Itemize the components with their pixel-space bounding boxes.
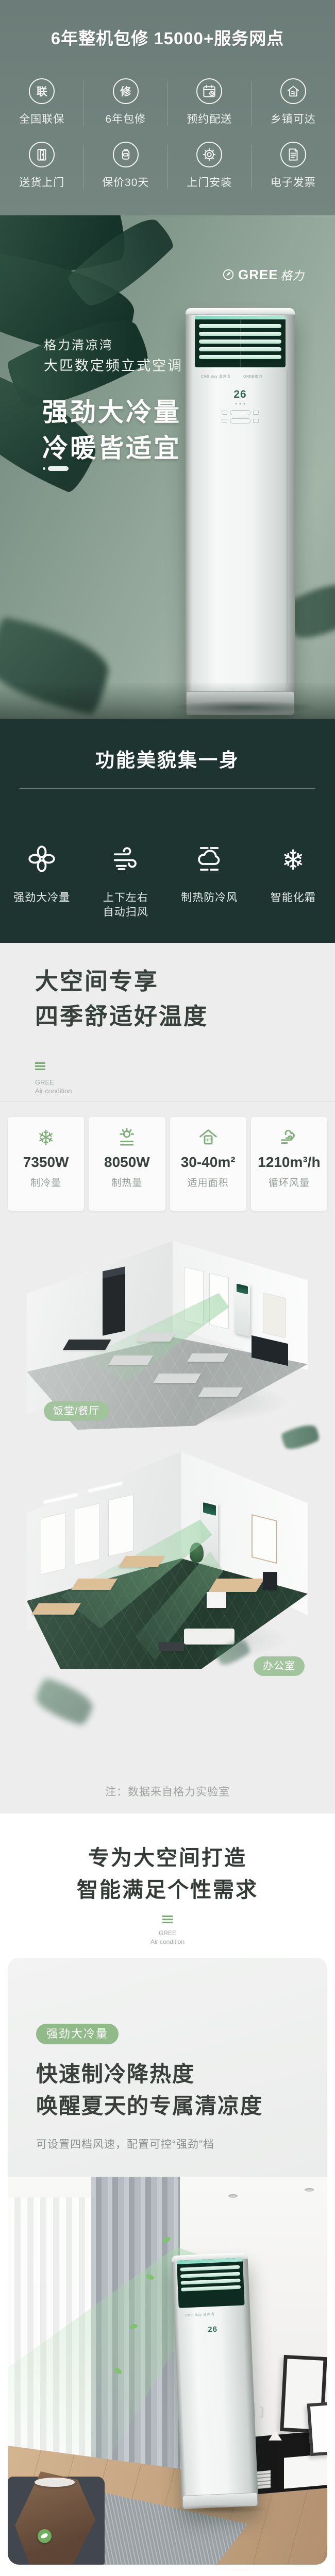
ceiling-downlight: [305, 2188, 314, 2192]
service-label: 6年包修: [105, 111, 146, 126]
repair-glyph: 修: [120, 83, 131, 99]
spec-card-airflow: 1210m³/h 循环风量: [251, 1117, 327, 1211]
calendar-icon: [196, 78, 222, 104]
panel-brand-right: GREE格力: [243, 374, 262, 379]
banner-title: 6年整机包修 15000+服务网点: [0, 25, 335, 49]
feature-auto-swing: 上下左右自动扫风: [84, 841, 168, 920]
service-item-township-delivery: 乡镇可达: [252, 78, 335, 126]
service-label: 送货上门: [19, 174, 64, 190]
ac-seam: [287, 370, 288, 684]
office-coffee-table: [159, 1642, 184, 1651]
room-tag-canteen: 饭堂/餐厅: [44, 1401, 109, 1421]
feature-warm-air: 制热防冷风: [167, 841, 252, 920]
ac-unit-hero: Chill Bay 清凉湾 GREE格力 26: [186, 308, 295, 715]
brand-aircondition: Air condition: [0, 1938, 335, 1946]
spec-label: 循环风量: [269, 1175, 310, 1189]
features-section: 功能美貌集一身 强劲大冷量 上下左右自动扫风 制热防冷风: [0, 719, 335, 943]
room-ac-unit: [234, 1281, 250, 1337]
room-window: [108, 1494, 133, 1556]
room-shelf: [103, 1266, 125, 1335]
spec-value: 1210m³/h: [258, 1154, 320, 1171]
brand-gree: GREE: [35, 1078, 72, 1087]
room-table: [198, 1387, 243, 1397]
ac-button-row: [222, 410, 259, 415]
ac-temperature-display: 26: [186, 388, 295, 401]
room-table: [154, 1374, 201, 1383]
ceiling-downlight: [228, 2194, 238, 2198]
feature-label: 智能化霜: [271, 891, 316, 905]
spec-value: 7350W: [23, 1154, 69, 1171]
room-window: [75, 1503, 100, 1566]
sun-heating-icon: [115, 1117, 139, 1151]
snowflake-icon: ❄: [37, 1117, 55, 1151]
grille-slat: [180, 2272, 240, 2278]
ac-air-grille: [177, 2258, 245, 2308]
hero-headline-2: 冷暖皆适宜: [42, 428, 181, 465]
hero-floor-shadow: [0, 682, 335, 719]
repair-circle-icon: 修: [113, 78, 139, 104]
features-title: 功能美貌集一身: [0, 744, 335, 772]
office-desk: [71, 1579, 118, 1590]
town-house-icon: [280, 78, 306, 104]
ac-button: [253, 419, 259, 423]
spec-card-heating: 8050W 制热量: [89, 1117, 165, 1211]
smart-section: 专为大空间打造 智能满足个性需求 GREE Air condition 强劲大冷…: [0, 1814, 335, 2576]
spec-card-row: ❄ 7350W 制冷量 8050W 制热量 m² 30-40m² 适用面积: [8, 1117, 327, 1211]
series-name: 格力清凉湾: [44, 335, 113, 353]
feature-label-line2: 自动扫风: [103, 905, 148, 920]
invoice-icon: [280, 142, 306, 167]
service-item-scheduled-delivery: 预约配送: [167, 78, 252, 126]
ac-unit-photo: Chill Bay 清凉湾 26: [171, 2252, 258, 2509]
sofa-tray: [35, 2478, 75, 2487]
grille-slat: [181, 2285, 241, 2292]
svg-text:m²: m²: [205, 1137, 211, 1142]
grille-accent: [195, 316, 286, 319]
ac-body: [186, 308, 295, 715]
feature-label-line1: 制热防冷风: [181, 891, 238, 905]
product-subtitle: 大匹数定频立式空调: [44, 354, 183, 375]
gree-logo-cn: 格力: [280, 266, 304, 283]
divider-line: [20, 788, 315, 789]
service-banner: 6年整机包修 15000+服务网点 联 全国联保 修 6年包修 预约配送 乡镇可: [0, 0, 335, 215]
service-item-6yr-repair: 修 6年包修: [84, 78, 168, 126]
service-label: 预约配送: [187, 111, 232, 126]
ac-floor-shadow: [172, 2504, 270, 2514]
office-exec-desk: [208, 1579, 264, 1592]
gree-logo: GREE 格力: [222, 266, 304, 283]
blurred-leaf: [32, 1677, 96, 1727]
feature-label-line1: 上下左右: [103, 891, 148, 905]
vase: [258, 2406, 263, 2418]
feature-card-strong-cooling: 强劲大冷量 快速制冷降热度 唤醒夏天的专属清凉度 可设置四档风速，配置可控“强劲…: [8, 1958, 327, 2565]
gree-logo-text: GREE: [238, 267, 278, 283]
spec-label: 适用面积: [188, 1175, 229, 1189]
brand-mark: GREE Air condition: [0, 1929, 335, 1946]
room-table-dark: [63, 1340, 111, 1350]
service-label: 电子发票: [271, 174, 316, 190]
spec-value: 8050W: [104, 1154, 150, 1171]
card-description: 可设置四档风速，配置可控“强劲”档: [36, 2136, 214, 2151]
brand-aircondition: Air condition: [35, 1087, 72, 1095]
leaf-badge-icon: [38, 2529, 52, 2543]
feature-smart-defrost: ❄ 智能化霜: [252, 841, 335, 920]
price-protect-icon: [113, 142, 139, 167]
feature-strong-cooling: 强劲大冷量: [0, 841, 84, 920]
panel-brand-left: Chill Bay 清凉湾: [201, 374, 230, 379]
card-heading-1: 快速制冷降热度: [36, 2057, 195, 2088]
office-desk: [31, 1603, 80, 1615]
office-sofa: [184, 1629, 234, 1645]
picture-frame-small: [307, 2401, 327, 2456]
spec-card-cooling: ❄ 7350W 制冷量: [8, 1117, 84, 1211]
spec-label: 制冷量: [30, 1175, 61, 1189]
room-render-office: [27, 1443, 308, 1669]
service-grid: 联 全国联保 修 6年包修 预约配送 乡镇可达: [0, 78, 335, 190]
room-tag-office: 办公室: [254, 1656, 305, 1676]
hero-headline-1: 强劲大冷量: [42, 392, 181, 429]
ac-button: [222, 411, 227, 415]
room-wall-panel: [263, 1293, 286, 1338]
green-bars-mark: [35, 1062, 45, 1070]
brand-gree: GREE: [0, 1929, 335, 1938]
ac-button: [230, 410, 250, 415]
dash-bar: [48, 466, 69, 471]
ac-top-cap: [186, 308, 295, 315]
card-heading-2: 唤醒夏天的专属清凉度: [36, 2089, 263, 2120]
space-title-2: 四季舒适好温度: [35, 997, 208, 1031]
feature-badge: 强劲大冷量: [36, 2024, 119, 2044]
feature-label-line1: 智能化霜: [271, 891, 316, 905]
service-item-installation: 上门安装: [167, 142, 252, 190]
data-source-note: 注：数据来自格力实验室: [0, 1784, 335, 1799]
service-label: 全国联保: [19, 111, 64, 126]
ac-button-row: [222, 418, 259, 423]
grille-slat: [181, 2279, 241, 2285]
gree-fan-icon: [222, 268, 235, 281]
ac-indicator-dots: [236, 403, 245, 404]
service-label: 乡镇可达: [271, 111, 316, 126]
spec-card-area: m² 30-40m² 适用面积: [170, 1117, 246, 1211]
dash-dot: [43, 467, 45, 470]
service-item-home-delivery: 送货上门: [0, 142, 84, 190]
brand-mark: GREE Air condition: [35, 1078, 72, 1095]
feature-label: 上下左右自动扫风: [103, 891, 148, 920]
service-item-national-warranty: 联 全国联保: [0, 78, 84, 126]
features-grid: 强劲大冷量 上下左右自动扫风 制热防冷风 ❄ 智能化霜: [0, 841, 335, 920]
snowflake-icon: ❄: [281, 841, 305, 874]
divider-line: [0, 1101, 335, 1102]
product-detail-page: 6年整机包修 15000+服务网点 联 全国联保 修 6年包修 预约配送 乡镇可: [0, 0, 335, 2576]
office-desk: [119, 1556, 165, 1567]
space-title-1: 大空间专享: [35, 962, 159, 996]
room-render-canteen: [27, 1229, 308, 1430]
service-label: 上门安装: [187, 174, 232, 190]
space-section: 大空间专享 四季舒适好温度 GREE Air condition ❄ 7350W…: [0, 943, 335, 1814]
fan-icon: [26, 841, 57, 874]
ac-button: [222, 419, 227, 423]
hero-section: GREE 格力 格力清凉湾 大匹数定频立式空调 强劲大冷量 冷暖皆适宜 Chil…: [0, 215, 335, 719]
room-table: [108, 1355, 153, 1365]
ac-button: [253, 411, 259, 415]
feature-label: 制热防冷风: [181, 891, 238, 905]
green-bars-mark: [162, 1916, 173, 1923]
room-wall-frame: [252, 1514, 277, 1564]
heat-cloud-icon: [194, 841, 225, 874]
office-chair: [263, 1572, 277, 1590]
grille-slat: [180, 2265, 240, 2272]
union-circle-icon: 联: [29, 78, 55, 104]
room-window: [41, 1512, 66, 1574]
door-icon: [29, 142, 55, 167]
office-cabinet: [207, 1592, 226, 1608]
room-table: [137, 1333, 175, 1342]
room-table: [188, 1353, 229, 1362]
service-item-e-invoice: 电子发票: [252, 142, 335, 190]
airflow-cloud-icon: [277, 1117, 301, 1151]
service-label: 保价30天: [102, 174, 149, 190]
spec-label: 制热量: [111, 1175, 142, 1189]
house-area-icon: m²: [196, 1117, 220, 1151]
wind-icon: [110, 841, 141, 874]
union-glyph: 联: [37, 83, 47, 99]
spec-value: 30-40m²: [181, 1154, 236, 1171]
gear-icon: [196, 142, 222, 167]
feature-label: 强劲大冷量: [13, 891, 70, 905]
feature-label-line1: 强劲大冷量: [13, 891, 70, 905]
service-item-price-protection: 保价30天: [84, 142, 168, 190]
decorative-dash: [43, 466, 69, 471]
tv-stand-drawer: [284, 2454, 327, 2489]
ac-seam: [193, 370, 193, 684]
grille-divider: [240, 320, 241, 367]
ac-button: [230, 418, 250, 423]
living-room-photo: Chill Bay 清凉湾 26: [8, 2177, 327, 2565]
ac-air-grille: [195, 316, 286, 367]
smart-title-2: 智能满足个性需求: [0, 1872, 335, 1903]
smart-title-1: 专为大空间打造: [0, 1840, 335, 1871]
